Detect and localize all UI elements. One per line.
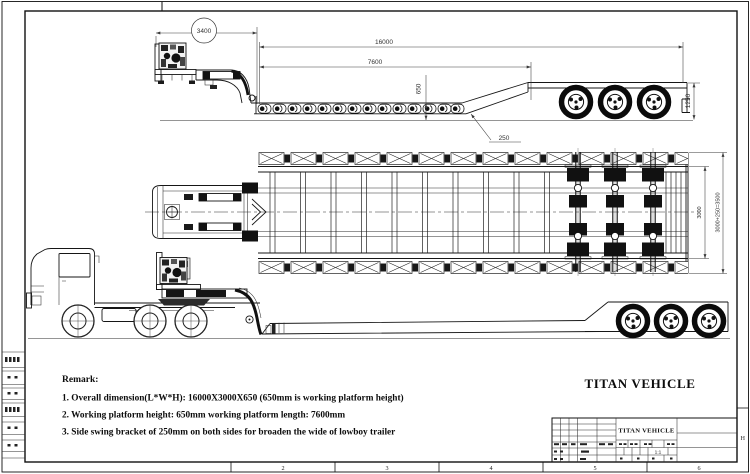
zone-label-h: H xyxy=(741,435,746,442)
plan-view: 3000 3000+250=3500 xyxy=(145,148,727,279)
dim-platform-width: 3000 xyxy=(697,206,703,218)
swing-bracket-bands xyxy=(259,153,706,274)
truck-rear-wheel xyxy=(134,305,166,337)
dim-rear-deck-height: 1250 xyxy=(685,93,692,108)
zone-label-2: 2 xyxy=(281,465,284,472)
truck-front-wheel xyxy=(62,305,94,337)
dim-overall-width: 3000+250=3500 xyxy=(716,192,722,232)
trailer-rear-wheel xyxy=(695,307,724,336)
rear-wheel xyxy=(562,88,591,117)
dim-platform-length: 7600 xyxy=(368,59,383,66)
dim-side-bracket-width: 250 xyxy=(499,135,510,142)
gooseneck-machinery-detail xyxy=(159,43,186,69)
hitched-gooseneck xyxy=(157,253,262,335)
zone-label-6: 6 xyxy=(697,465,700,472)
truck-rear-wheel xyxy=(175,305,207,337)
remark-item-2: 2. Working platform height: 650mm workin… xyxy=(62,411,345,421)
engineering-drawing-sheet: 2 3 4 5 6 H xyxy=(0,0,750,474)
title-block-scale: 1:1 xyxy=(655,449,662,455)
cross-members xyxy=(270,172,681,253)
zone-label-3: 3 xyxy=(385,465,388,472)
left-margin-strip xyxy=(2,352,25,458)
fifth-wheel xyxy=(158,299,210,306)
remark-block: Remark: 1. Overall dimension(L*W*H): 160… xyxy=(62,375,404,438)
rear-wheel xyxy=(640,88,669,117)
remark-item-1: 1. Overall dimension(L*W*H): 16000X3000X… xyxy=(62,393,404,404)
dim-gooseneck-length: 3400 xyxy=(197,28,212,35)
plan-view-dimensions: 3000 3000+250=3500 xyxy=(689,153,727,274)
zone-label-4: 4 xyxy=(489,465,492,472)
trailer-rear-wheel xyxy=(657,307,686,336)
lowboy-trailer-drawing: 2 3 4 5 6 H xyxy=(0,0,750,474)
left-strip-fine-print xyxy=(5,357,20,447)
trailer-rear-wheel xyxy=(619,307,648,336)
gooseneck-machinery-detail xyxy=(160,258,187,284)
rear-wheel xyxy=(601,88,630,117)
remark-title: Remark: xyxy=(62,375,98,385)
deck-tie-links xyxy=(258,104,464,113)
title-block: TITAN VEHICLE 1:1 xyxy=(552,418,737,462)
dim-overall-length: 16000 xyxy=(375,39,393,46)
side-elevation-view: 3400 16000 7600 650 1250 250 xyxy=(155,18,700,142)
side-view-dimensions: 3400 16000 7600 650 1250 250 xyxy=(156,18,700,142)
title-block-company: TITAN VEHICLE xyxy=(618,428,675,435)
zone-label-5: 5 xyxy=(593,465,596,472)
remark-item-3: 3. Side swing bracket of 250mm on both s… xyxy=(62,428,395,438)
bottom-zone-ticks xyxy=(231,462,647,472)
lowbed-deck-side xyxy=(262,302,728,336)
dim-platform-height: 650 xyxy=(416,83,423,94)
main-title: TITAN VEHICLE xyxy=(585,376,696,391)
